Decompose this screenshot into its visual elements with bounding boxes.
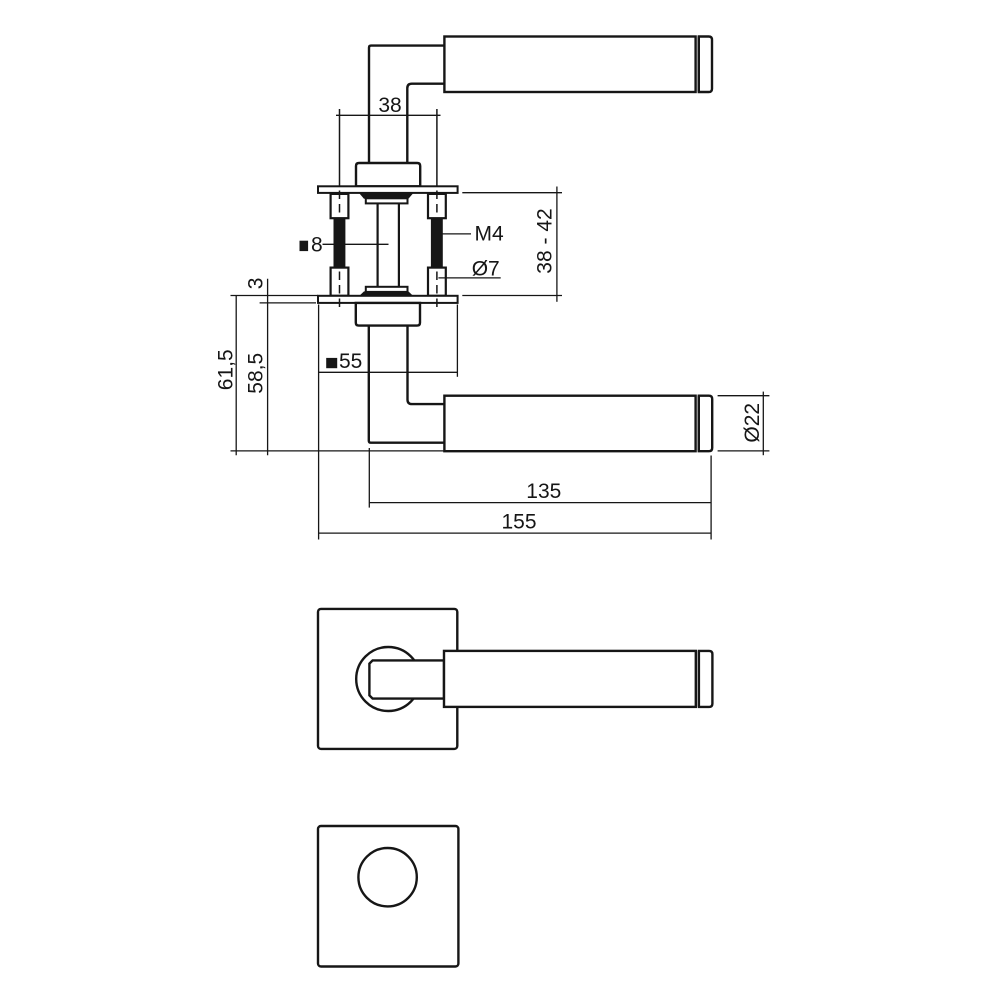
svg-text:58,5: 58,5 — [244, 353, 267, 394]
svg-text:Ø7: Ø7 — [472, 258, 500, 281]
svg-text:38 - 42: 38 - 42 — [534, 208, 557, 273]
svg-text:8: 8 — [311, 234, 323, 257]
svg-text:135: 135 — [526, 480, 561, 503]
svg-text:61,5: 61,5 — [215, 349, 238, 390]
svg-text:3: 3 — [244, 278, 267, 290]
svg-text:38: 38 — [378, 94, 401, 117]
svg-text:M4: M4 — [475, 222, 504, 245]
svg-text:Ø22: Ø22 — [741, 403, 764, 443]
svg-text:55: 55 — [339, 350, 362, 373]
svg-text:155: 155 — [501, 511, 536, 534]
